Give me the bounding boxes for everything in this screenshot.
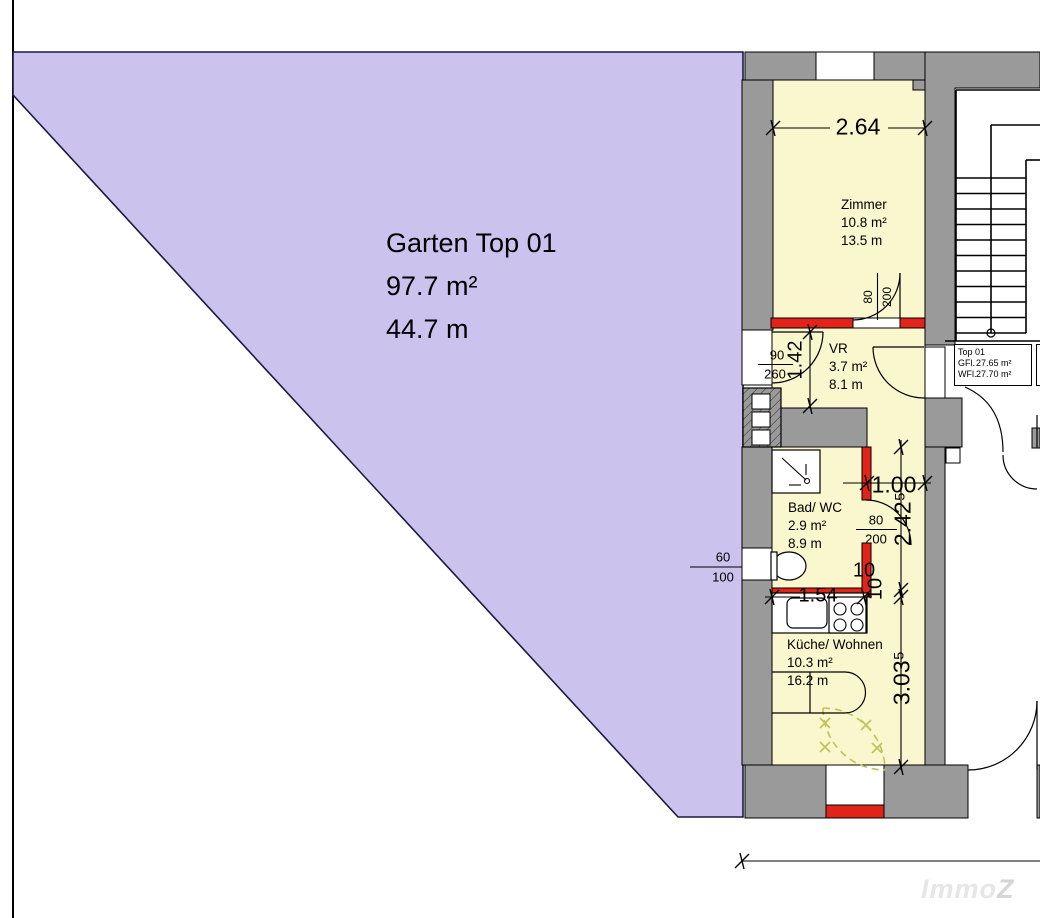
dim-zimmer-door-h: 200 bbox=[880, 287, 894, 307]
room-label-zimmer: Zimmer 10.8 m² 13.5 m bbox=[841, 196, 887, 250]
dim-bad-width: 1.54 bbox=[799, 585, 838, 608]
bath-window-opening bbox=[742, 548, 772, 580]
unit-name: Top 01 bbox=[958, 347, 1028, 358]
dim-wc-window-h: 100 bbox=[712, 570, 734, 585]
wfl-value: 27.70 m² bbox=[976, 369, 1012, 380]
room-name: VR bbox=[829, 340, 867, 358]
wall-bottom-right bbox=[884, 765, 968, 818]
gfl-label: GFl. bbox=[958, 358, 976, 369]
watermark: ImmoZ bbox=[921, 874, 1015, 905]
wall-niche bbox=[946, 448, 960, 463]
dim-kueche-height: 3.03⁵ bbox=[889, 651, 916, 705]
unit-info-box: Top 01 GFl. 27.65 m² WFl. 27.70 m² bbox=[954, 344, 1032, 386]
neighbor-door-arc bbox=[968, 701, 1037, 770]
dim-bad-door-w: 80 bbox=[869, 513, 883, 528]
room-label-kueche: Küche/ Wohnen 10.3 m² 16.2 m bbox=[787, 636, 883, 690]
room-name: Küche/ Wohnen bbox=[787, 636, 883, 654]
room-area: 2.9 m² bbox=[788, 517, 842, 535]
window-top bbox=[816, 52, 874, 80]
room-perimeter: 13.5 m bbox=[841, 232, 887, 250]
gfl-value: 27.65 m² bbox=[976, 358, 1012, 369]
wall-left-upper bbox=[742, 80, 773, 330]
wall-stairwell-top bbox=[925, 52, 1040, 345]
dim-garden-door-h: 260 bbox=[764, 367, 786, 382]
entrance-threshold bbox=[826, 805, 884, 818]
room-area: 3.7 m² bbox=[829, 358, 867, 376]
shaft bbox=[743, 388, 781, 447]
wall-right-upper bbox=[925, 398, 962, 447]
wall-corridor-stub bbox=[1032, 428, 1040, 448]
garden-polygon bbox=[13, 52, 743, 817]
wfl-label: WFl. bbox=[958, 369, 976, 380]
dim-vr-height: 1.42 bbox=[785, 341, 808, 380]
garden-area: 97.7 m² bbox=[386, 265, 557, 308]
neighbor-info-box: T G W bbox=[1036, 344, 1040, 386]
wall-left-lower bbox=[742, 580, 772, 765]
wall-bottom-left bbox=[745, 765, 826, 818]
entrance-opening bbox=[925, 347, 945, 398]
corridor-door-arc bbox=[1003, 455, 1037, 489]
dim-garden-door-w: 90 bbox=[770, 348, 784, 363]
wall-left-mid bbox=[742, 447, 772, 548]
room-name: Zimmer bbox=[841, 196, 887, 214]
garden-label: Garten Top 01 97.7 m² 44.7 m bbox=[386, 222, 557, 351]
dim-bad-door-h: 200 bbox=[865, 532, 887, 547]
corridor-door-curve bbox=[965, 387, 1003, 452]
room-area: 10.3 m² bbox=[787, 654, 883, 672]
wall-notch bbox=[913, 80, 925, 90]
dim-wc-window-w: 60 bbox=[716, 550, 730, 565]
floor-plan-drawing bbox=[0, 0, 1040, 918]
wall-right-lower bbox=[925, 447, 945, 770]
room-perimeter: 8.9 m bbox=[788, 535, 842, 553]
dim-corridor-height: 2.42⁵ bbox=[890, 492, 917, 546]
room-area: 10.8 m² bbox=[841, 214, 887, 232]
dim-zimmer-door-w: 80 bbox=[861, 290, 875, 303]
wall-top-left bbox=[745, 52, 816, 80]
wc-tank bbox=[771, 552, 777, 580]
floor-plan: Garten Top 01 97.7 m² 44.7 m Zimmer 10.8… bbox=[0, 0, 1040, 918]
room-label-vr: VR 3.7 m² 8.1 m bbox=[829, 340, 867, 394]
wall-top-right bbox=[874, 52, 930, 80]
room-label-bad: Bad/ WC 2.9 m² 8.9 m bbox=[788, 499, 842, 553]
room-perimeter: 8.1 m bbox=[829, 376, 867, 394]
room-name: Bad/ WC bbox=[788, 499, 842, 517]
staircase bbox=[945, 90, 1040, 341]
dim-wall-b: 10 bbox=[865, 578, 888, 600]
garden-title: Garten Top 01 bbox=[386, 222, 557, 265]
room-perimeter: 16.2 m bbox=[787, 672, 883, 690]
wall-internal bbox=[781, 408, 867, 447]
dim-zimmer-width: 2.64 bbox=[836, 114, 881, 141]
garden-length: 44.7 m bbox=[386, 308, 557, 351]
